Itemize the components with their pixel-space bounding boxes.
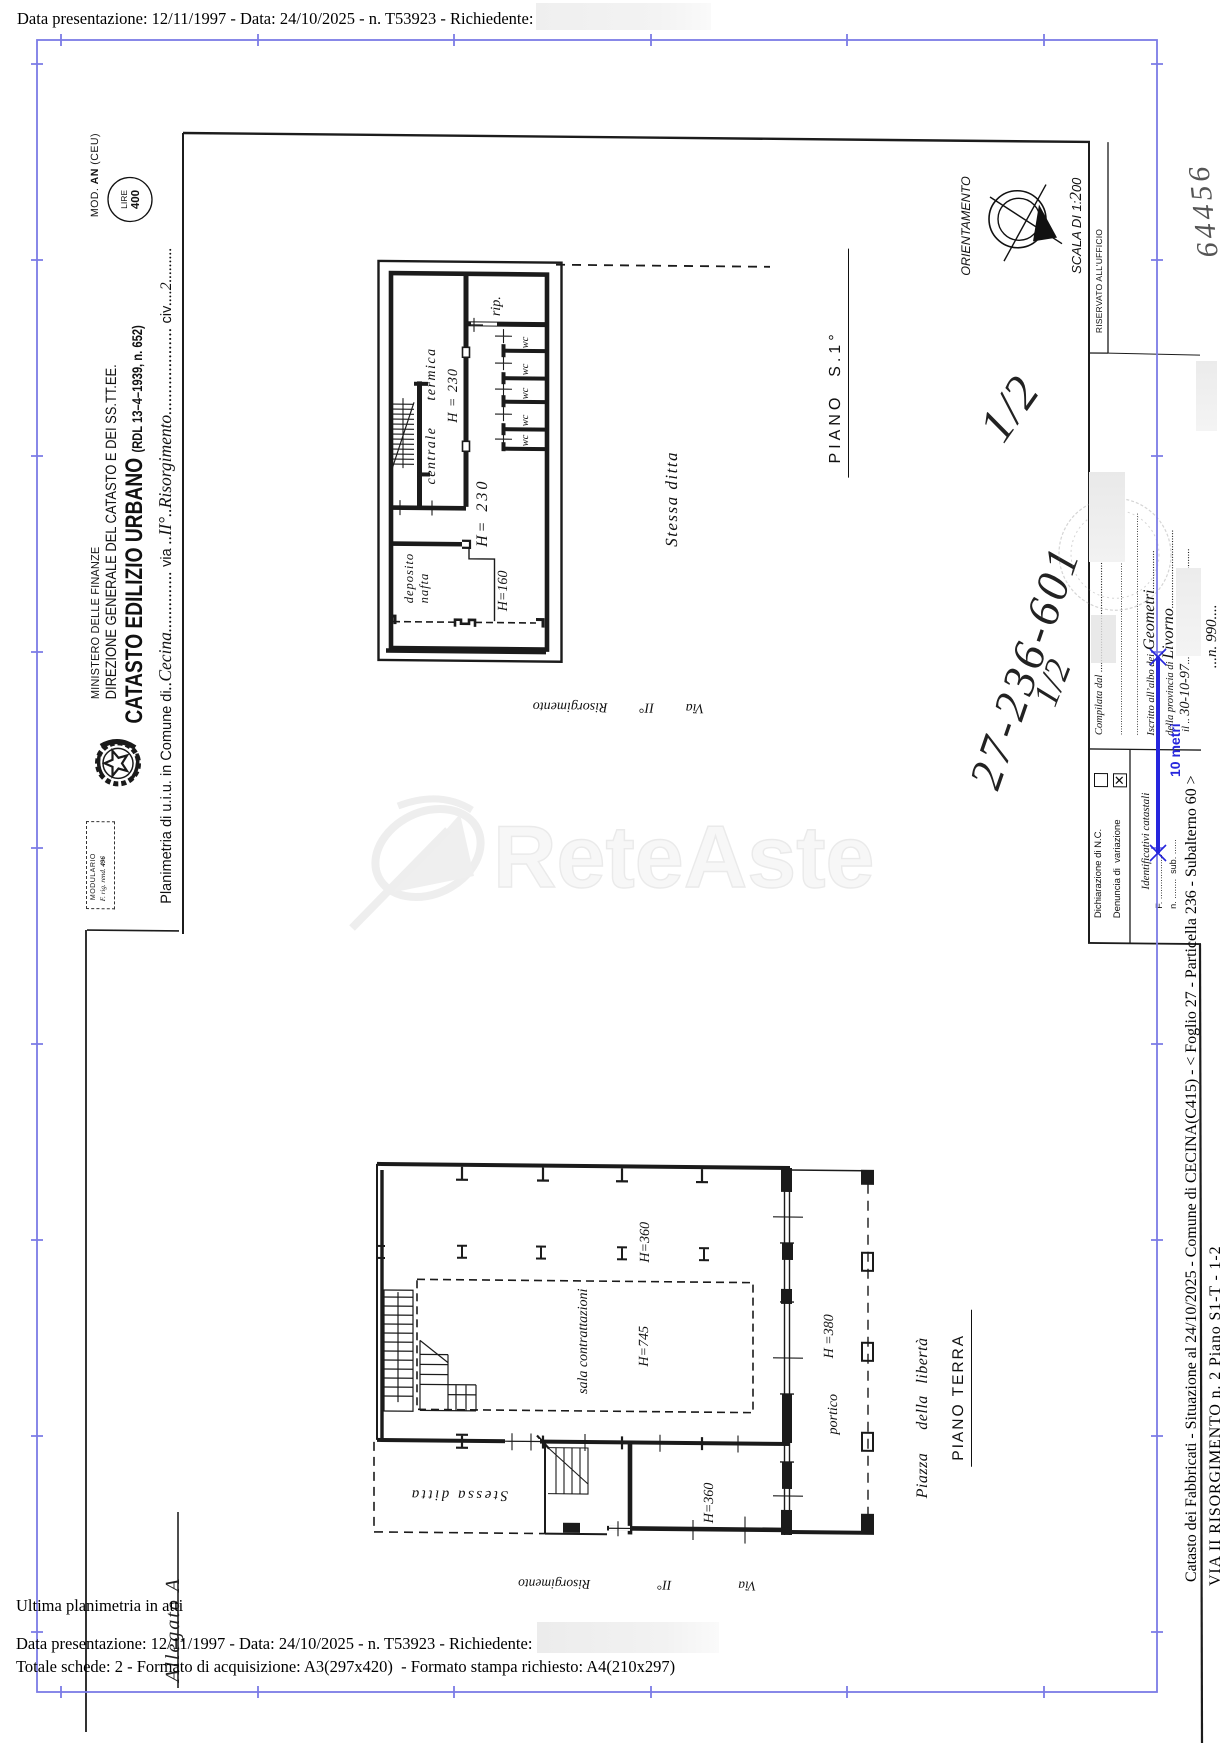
svg-text:10 metri: 10 metri (1167, 723, 1183, 777)
